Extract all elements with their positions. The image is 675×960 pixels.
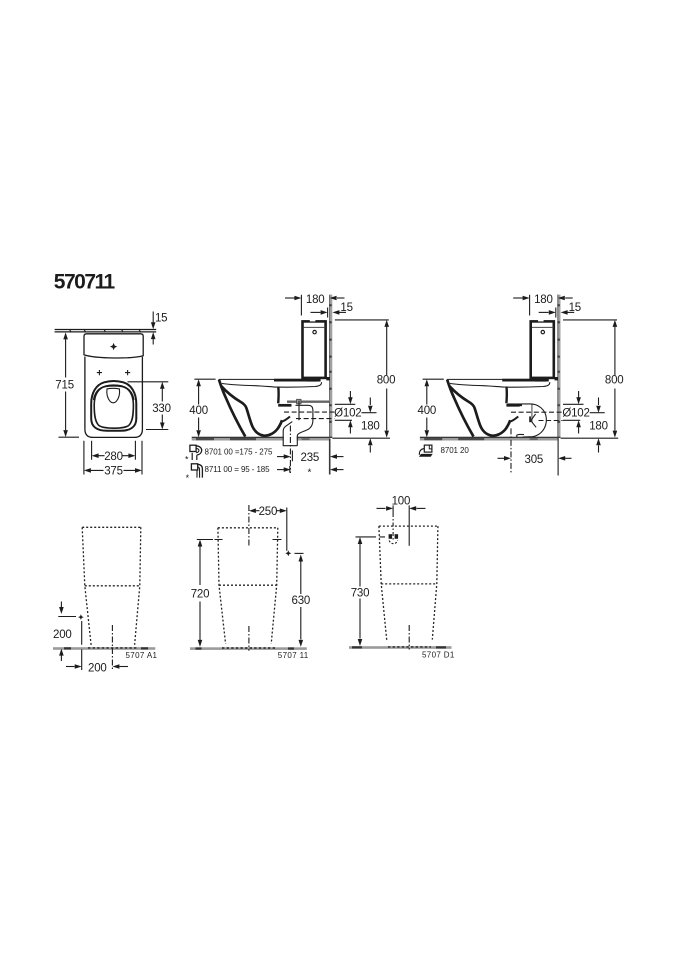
- svg-text:715: 715: [55, 380, 74, 392]
- svg-text:8701 00 =175 - 275: 8701 00 =175 - 275: [205, 447, 273, 456]
- svg-text:5707 11: 5707 11: [278, 651, 309, 660]
- svg-text:Ø102: Ø102: [334, 408, 361, 420]
- svg-text:180: 180: [361, 421, 380, 433]
- svg-text:305: 305: [525, 454, 544, 466]
- svg-text:730: 730: [351, 588, 370, 600]
- svg-text:*: *: [307, 468, 311, 479]
- svg-text:200: 200: [53, 629, 72, 641]
- svg-text:*: *: [185, 454, 189, 464]
- svg-text:630: 630: [292, 595, 311, 607]
- svg-text:5707 A1: 5707 A1: [126, 651, 158, 660]
- svg-text:330: 330: [152, 403, 171, 415]
- svg-text:720: 720: [191, 588, 210, 600]
- svg-text:400: 400: [189, 405, 208, 417]
- svg-text:570711: 570711: [54, 271, 116, 294]
- svg-text:5707 D1: 5707 D1: [422, 651, 455, 660]
- svg-text:15: 15: [155, 312, 167, 324]
- svg-text:280: 280: [104, 451, 123, 463]
- svg-text:100: 100: [392, 496, 411, 508]
- svg-text:8701 20: 8701 20: [441, 446, 470, 455]
- svg-text:250: 250: [259, 506, 278, 518]
- svg-text:200: 200: [88, 662, 107, 674]
- svg-text:*: *: [186, 473, 190, 483]
- svg-text:235: 235: [301, 452, 320, 464]
- svg-text:180: 180: [306, 294, 325, 306]
- svg-text:800: 800: [377, 374, 396, 386]
- svg-text:375: 375: [104, 466, 123, 478]
- svg-text:8711 00 = 95 - 185: 8711 00 = 95 - 185: [205, 465, 271, 474]
